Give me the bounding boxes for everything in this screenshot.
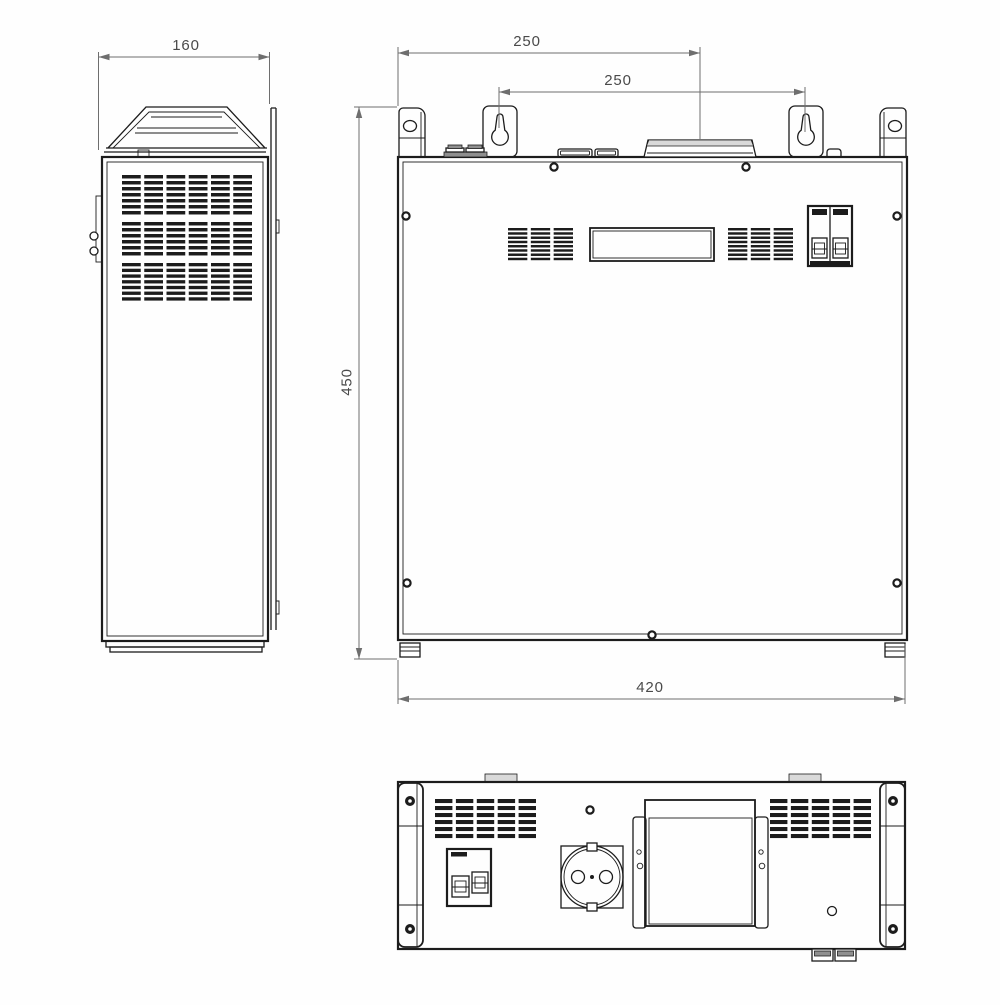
vent-slat — [728, 241, 747, 243]
carry-handle — [104, 107, 267, 157]
vent-slat — [144, 292, 163, 295]
bottom-view — [398, 774, 905, 961]
vent-slat — [774, 241, 793, 243]
vent-slat — [774, 254, 793, 256]
vent-slat — [211, 228, 230, 231]
vent-slat — [144, 286, 163, 289]
vent-slat — [728, 245, 747, 247]
vent-slat — [770, 813, 787, 817]
bottom-connectors — [812, 949, 856, 961]
vent-slat — [233, 193, 252, 196]
vent-slat — [167, 234, 186, 237]
vent-slat — [211, 297, 230, 300]
vent-slat — [554, 228, 573, 230]
vent-slat — [498, 806, 515, 810]
vent-slat — [854, 813, 871, 817]
vent-slat — [122, 228, 141, 231]
vent-slat — [833, 799, 850, 803]
socket-clip-top — [587, 843, 597, 851]
vent-slat — [211, 175, 230, 178]
vent-slat — [770, 827, 787, 831]
vent-slat — [498, 799, 515, 803]
vent-slat — [791, 813, 808, 817]
vent-slat — [211, 222, 230, 225]
vent-slat — [833, 827, 850, 831]
vent-slat — [122, 199, 141, 202]
vent-slat — [531, 254, 550, 256]
socket-pin-hole — [600, 871, 613, 884]
vent-slat — [211, 199, 230, 202]
vent-slat — [812, 834, 829, 838]
vent-slat — [770, 834, 787, 838]
display-window — [590, 228, 714, 261]
vent-slat — [122, 175, 141, 178]
vent-slat — [435, 827, 452, 831]
vent-slat — [189, 240, 208, 243]
vent-slat — [554, 245, 573, 247]
vent-slat — [167, 199, 186, 202]
vent-slat — [167, 280, 186, 283]
vent-slat — [751, 245, 770, 247]
vent-slat — [144, 280, 163, 283]
vent-slat — [531, 258, 550, 260]
vent-slat — [854, 806, 871, 810]
keyhole-slot — [492, 114, 509, 145]
vent-slat — [233, 199, 252, 202]
vent-slat — [122, 222, 141, 225]
vent-slat — [189, 175, 208, 178]
vent-slat — [233, 252, 252, 255]
vent-slat — [751, 237, 770, 239]
vent-slat — [812, 806, 829, 810]
vent-slat — [122, 252, 141, 255]
vent-slat — [498, 834, 515, 838]
vent-slat — [519, 820, 536, 824]
vent-slat — [554, 254, 573, 256]
vent-slat — [508, 241, 527, 243]
vent-slat — [189, 274, 208, 277]
front-foot-right — [885, 643, 905, 657]
vent-slat — [435, 806, 452, 810]
vent-slat — [554, 249, 573, 251]
vent-slat — [233, 263, 252, 266]
vent-slat — [167, 187, 186, 190]
stabilizer-dimension-drawing: 160 250 250 450 420 — [0, 0, 1000, 1000]
vent-slat — [456, 806, 473, 810]
vent-slat — [770, 820, 787, 824]
vent-slat — [456, 827, 473, 831]
vent-slat — [167, 297, 186, 300]
vent-slat — [435, 813, 452, 817]
vent-slat — [498, 813, 515, 817]
vent-slat — [211, 274, 230, 277]
breaker-toggle-left — [452, 876, 469, 897]
dim-label-mount-spacing: 250 — [604, 72, 631, 89]
vent-slat — [144, 240, 163, 243]
vent-slat — [233, 286, 252, 289]
vent-slat — [233, 211, 252, 214]
vent-slat — [211, 193, 230, 196]
vent-slat — [508, 228, 527, 230]
bottom-screw — [586, 806, 593, 813]
vent-slat — [519, 813, 536, 817]
vent-slat — [774, 249, 793, 251]
vent-slat — [189, 297, 208, 300]
vent-slat — [498, 820, 515, 824]
vent-slat — [233, 246, 252, 249]
vent-slat — [770, 799, 787, 803]
vent-slat — [144, 193, 163, 196]
vent-slat — [144, 274, 163, 277]
vent-slat — [728, 237, 747, 239]
vent-slat — [189, 187, 208, 190]
vent-slat — [233, 240, 252, 243]
keyhole-slot — [798, 114, 815, 145]
vent-slat — [508, 232, 527, 234]
vent-slat — [189, 181, 208, 184]
vent-slat — [189, 246, 208, 249]
vent-slat — [144, 263, 163, 266]
vent-slat — [519, 827, 536, 831]
vent-slat — [435, 834, 452, 838]
cable-hole — [828, 907, 837, 916]
bottom-view-tab-right — [789, 774, 821, 782]
bottom-vent-grid-right — [770, 799, 871, 838]
vent-slat — [854, 834, 871, 838]
vent-slat — [122, 280, 141, 283]
vent-slat — [751, 228, 770, 230]
vent-slat — [167, 205, 186, 208]
vent-slat — [854, 827, 871, 831]
vent-slat — [751, 249, 770, 251]
vent-slat — [233, 228, 252, 231]
vent-slat — [211, 205, 230, 208]
vent-slat — [554, 241, 573, 243]
vent-slat — [167, 175, 186, 178]
vent-slat — [435, 820, 452, 824]
vent-slat — [508, 258, 527, 260]
corner-rail-left — [398, 783, 423, 947]
bracket-hole — [889, 121, 902, 132]
front-panel-seam — [403, 162, 902, 634]
dim-label-width: 420 — [636, 679, 663, 696]
vent-slat — [167, 269, 186, 272]
vent-slat — [233, 222, 252, 225]
vent-slat — [751, 254, 770, 256]
vent-slat — [477, 834, 494, 838]
side-vent-grid-bottom — [122, 263, 252, 301]
vent-slat — [728, 258, 747, 260]
vent-slat — [144, 211, 163, 214]
vent-slat — [144, 222, 163, 225]
vent-slat — [531, 237, 550, 239]
dimension-top-offset: 250 — [398, 33, 700, 139]
vent-slat — [189, 280, 208, 283]
mounting-bracket-outer-right — [880, 108, 906, 157]
vent-slat — [211, 252, 230, 255]
vent-slat — [144, 269, 163, 272]
vent-slat — [167, 240, 186, 243]
vent-slat — [751, 232, 770, 234]
vent-slat — [211, 187, 230, 190]
front-cabinet-outline — [398, 157, 907, 640]
vent-slat — [189, 234, 208, 237]
vent-slat — [144, 246, 163, 249]
top-cover-plate — [644, 140, 756, 157]
vent-slat — [233, 175, 252, 178]
vent-slat — [791, 806, 808, 810]
vent-slat — [167, 292, 186, 295]
vent-slat — [774, 237, 793, 239]
mounting-bracket-outer-left — [399, 108, 425, 157]
vent-slat — [144, 234, 163, 237]
vent-slat — [477, 799, 494, 803]
vent-slat — [211, 269, 230, 272]
bracket-hole — [404, 121, 417, 132]
vent-slat — [144, 199, 163, 202]
vent-slat — [122, 297, 141, 300]
vent-slat — [435, 799, 452, 803]
vent-slat — [508, 254, 527, 256]
vent-slat — [122, 274, 141, 277]
vent-slat — [233, 292, 252, 295]
vent-slat — [456, 820, 473, 824]
vent-slat — [751, 241, 770, 243]
vent-slat — [854, 820, 871, 824]
vent-slat — [167, 252, 186, 255]
vent-slat — [189, 263, 208, 266]
vent-slat — [144, 205, 163, 208]
vent-slat — [554, 258, 573, 260]
vent-slat — [519, 799, 536, 803]
vent-slat — [791, 799, 808, 803]
vent-slat — [233, 274, 252, 277]
vent-slat — [167, 263, 186, 266]
vent-slat — [812, 820, 829, 824]
dimension-mount-spacing: 250 — [499, 72, 805, 132]
vent-slat — [477, 813, 494, 817]
vent-slat — [728, 254, 747, 256]
front-vent-grid-left — [508, 228, 573, 260]
vent-slat — [189, 193, 208, 196]
side-base — [106, 641, 264, 652]
vent-slat — [167, 222, 186, 225]
vent-slat — [728, 228, 747, 230]
vent-slat — [189, 269, 208, 272]
vent-slat — [211, 280, 230, 283]
vent-slat — [144, 297, 163, 300]
vent-slat — [456, 813, 473, 817]
vent-slat — [770, 806, 787, 810]
vent-slat — [122, 211, 141, 214]
vent-slat — [122, 286, 141, 289]
vent-slat — [233, 234, 252, 237]
vent-slat — [122, 187, 141, 190]
vent-slat — [791, 827, 808, 831]
vent-slat — [211, 292, 230, 295]
vent-slat — [167, 181, 186, 184]
vent-slat — [122, 269, 141, 272]
dim-label-side-depth: 160 — [172, 37, 199, 54]
vent-slat — [122, 292, 141, 295]
vent-slat — [728, 232, 747, 234]
side-hinge — [90, 196, 102, 262]
vent-slat — [833, 806, 850, 810]
vent-slat — [774, 232, 793, 234]
socket-clip-bottom — [587, 903, 597, 911]
dimension-height: 450 — [339, 107, 398, 659]
vent-slat — [812, 813, 829, 817]
vent-slat — [456, 834, 473, 838]
bottom-view-tab-left — [485, 774, 517, 782]
vent-slat — [531, 241, 550, 243]
technical-drawing-page: 160 250 250 450 420 — [0, 0, 1000, 1000]
power-socket — [561, 843, 623, 911]
vent-slat — [211, 240, 230, 243]
bottom-breaker — [447, 849, 491, 906]
vent-slat — [519, 806, 536, 810]
side-vent-grid-middle — [122, 222, 252, 255]
dimension-width: 420 — [398, 644, 905, 704]
vent-slat — [211, 246, 230, 249]
vent-slat — [122, 263, 141, 266]
front-panel-screws — [402, 163, 900, 638]
vent-slat — [519, 834, 536, 838]
top-terminal-block — [444, 145, 487, 157]
mounting-bracket-inner-right — [789, 106, 823, 157]
vent-slat — [167, 274, 186, 277]
circuit-breaker — [808, 206, 852, 266]
vent-slat — [774, 245, 793, 247]
vent-slat — [477, 806, 494, 810]
terminal-cover — [633, 800, 768, 928]
vent-slat — [189, 292, 208, 295]
corner-rail-right — [880, 783, 905, 947]
front-vent-grid-right — [728, 228, 793, 260]
vent-slat — [189, 228, 208, 231]
side-vent-grid-top — [122, 175, 252, 214]
front-view — [398, 106, 907, 657]
vent-slat — [144, 175, 163, 178]
vent-slat — [774, 228, 793, 230]
vent-slat — [189, 211, 208, 214]
vent-slat — [211, 234, 230, 237]
vent-slat — [167, 228, 186, 231]
top-connector-plates — [558, 149, 618, 157]
vent-slat — [233, 205, 252, 208]
vent-slat — [728, 249, 747, 251]
vent-slat — [167, 246, 186, 249]
vent-slat — [144, 252, 163, 255]
vent-slat — [211, 286, 230, 289]
vent-slat — [508, 245, 527, 247]
vent-slat — [211, 181, 230, 184]
mounting-bracket-inner-left — [483, 106, 517, 157]
vent-slat — [144, 228, 163, 231]
vent-slat — [144, 181, 163, 184]
vent-slat — [531, 249, 550, 251]
wall-bracket-profile — [271, 108, 279, 630]
vent-slat — [167, 211, 186, 214]
breaker-toggle-right — [472, 872, 488, 893]
vent-slat — [189, 286, 208, 289]
vent-slat — [531, 232, 550, 234]
top-small-bump — [827, 149, 841, 157]
vent-slat — [211, 211, 230, 214]
socket-pin-hole — [572, 871, 585, 884]
vent-slat — [122, 240, 141, 243]
vent-slat — [122, 205, 141, 208]
front-foot-left — [400, 643, 420, 657]
vent-slat — [833, 834, 850, 838]
vent-slat — [791, 820, 808, 824]
vent-slat — [167, 193, 186, 196]
vent-slat — [456, 799, 473, 803]
vent-slat — [508, 249, 527, 251]
vent-slat — [122, 193, 141, 196]
vent-slat — [531, 228, 550, 230]
vent-slat — [189, 252, 208, 255]
vent-slat — [498, 827, 515, 831]
vent-slat — [774, 258, 793, 260]
vent-slat — [233, 297, 252, 300]
vent-slat — [812, 827, 829, 831]
vent-slat — [477, 827, 494, 831]
vent-slat — [167, 286, 186, 289]
dim-label-height: 450 — [339, 368, 356, 395]
dim-label-top-offset: 250 — [513, 33, 540, 50]
vent-slat — [122, 234, 141, 237]
vent-slat — [833, 820, 850, 824]
vent-slat — [554, 232, 573, 234]
vent-slat — [554, 237, 573, 239]
vent-slat — [791, 834, 808, 838]
bottom-vent-grid-left — [435, 799, 536, 838]
vent-slat — [751, 258, 770, 260]
vent-slat — [531, 245, 550, 247]
vent-slat — [233, 181, 252, 184]
vent-slat — [233, 187, 252, 190]
vent-slat — [211, 263, 230, 266]
vent-slat — [477, 820, 494, 824]
side-panel-seam — [107, 162, 263, 636]
vent-slat — [189, 222, 208, 225]
vent-slat — [144, 187, 163, 190]
vent-slat — [189, 205, 208, 208]
vent-slat — [122, 181, 141, 184]
vent-slat — [854, 799, 871, 803]
vent-slat — [833, 813, 850, 817]
vent-slat — [812, 799, 829, 803]
vent-slat — [233, 269, 252, 272]
vent-slat — [233, 280, 252, 283]
vent-slat — [189, 199, 208, 202]
vent-slat — [122, 246, 141, 249]
side-view — [90, 107, 279, 652]
vent-slat — [508, 237, 527, 239]
